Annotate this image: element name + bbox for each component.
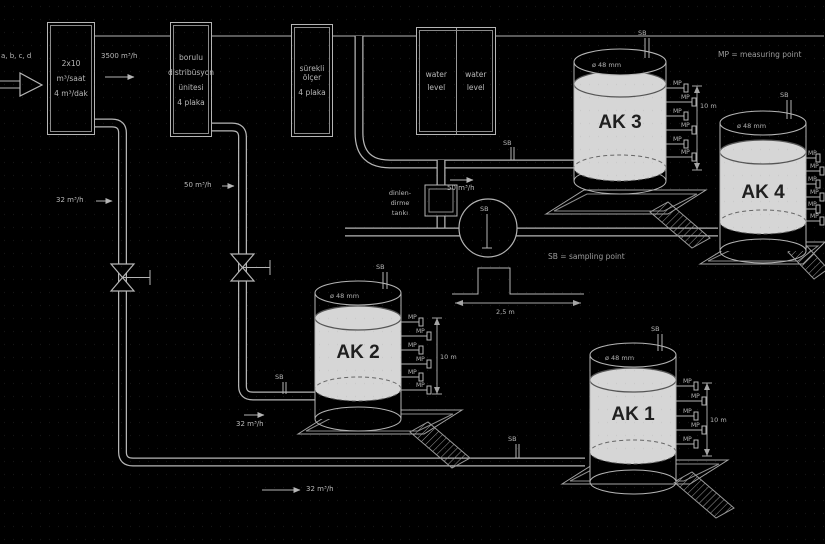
process-box-2: borulu distribüsyon ünitesi 4 plaka bbox=[170, 22, 212, 137]
ak2-sb-label: SB bbox=[376, 263, 385, 271]
svg-text:SB: SB bbox=[275, 373, 284, 381]
valve-mid bbox=[231, 254, 270, 281]
svg-text:MP: MP bbox=[408, 369, 417, 376]
svg-text:MP: MP bbox=[683, 436, 692, 443]
pipe-sample-riser-mid: SB bbox=[503, 139, 514, 160]
settling-feed-flow-label: 50 m³/h bbox=[447, 184, 475, 193]
main-feed-flow-label: 3500 m³/h bbox=[101, 52, 137, 61]
ak1-ramp bbox=[674, 472, 734, 518]
ak3-diameter-label: ø 48 mm bbox=[592, 61, 621, 69]
svg-text:MP: MP bbox=[810, 189, 819, 196]
bottom-line-flow-label: 32 m³/h bbox=[306, 485, 334, 494]
ak1-diameter-label: ø 48 mm bbox=[605, 354, 634, 362]
tank-ak4: SB ø 48 mm AK 4 MP MP MP MP MP MP bbox=[720, 91, 824, 263]
ak1-height-dimension: 10 m bbox=[702, 383, 727, 456]
svg-text:MP: MP bbox=[808, 201, 817, 208]
ak2-feed-flow-label: 32 m³/h bbox=[236, 420, 264, 429]
svg-text:MP: MP bbox=[416, 356, 425, 363]
box3-line2: 4 plaka bbox=[296, 88, 327, 97]
box1-line1: 2x10 bbox=[60, 59, 83, 68]
box4-cell-1: water level bbox=[417, 28, 456, 134]
svg-text:MP: MP bbox=[416, 328, 425, 335]
svg-text:MP: MP bbox=[416, 382, 425, 389]
svg-text:MP: MP bbox=[808, 176, 817, 183]
piping-linework: SB ø 48 mm AK 3 MP MP MP MP MP MP 10 m S… bbox=[0, 0, 825, 544]
svg-text:SB: SB bbox=[508, 435, 517, 443]
svg-text:MP: MP bbox=[683, 408, 692, 415]
ak3-nozzles: MP MP MP MP MP MP bbox=[666, 80, 696, 161]
ak4-sb-label: SB bbox=[780, 91, 789, 99]
ak1-name: AK 1 bbox=[611, 404, 655, 425]
box4-cell1-line1: water bbox=[424, 70, 449, 79]
ak4-name: AK 4 bbox=[741, 182, 785, 203]
inlet-label: a, b, c, d bbox=[1, 52, 31, 61]
box2-line1: borulu bbox=[177, 53, 205, 62]
svg-text:MP: MP bbox=[810, 213, 819, 220]
svg-text:MP: MP bbox=[681, 94, 690, 101]
legend-mp-definition: MP = measuring point bbox=[718, 50, 801, 59]
box4-cell2-line1: water bbox=[463, 70, 488, 79]
ak1-height-label: 10 m bbox=[710, 416, 727, 424]
ak3-name: AK 3 bbox=[598, 112, 641, 133]
settling-name-line3: tankı bbox=[392, 209, 408, 217]
settling-unit-name: dinlen- dirme tankı bbox=[378, 188, 422, 218]
level-gauge-circle: SB bbox=[459, 199, 517, 257]
process-box-1: 2x10 m³/saat 4 m³/dak bbox=[47, 22, 95, 135]
settling-name-line1: dinlen- bbox=[389, 189, 411, 197]
tank-ak2: SB ø 48 mm AK 2 MP MP MP MP MP MP 10 m bbox=[315, 263, 457, 431]
ak1-sb-label: SB bbox=[651, 325, 660, 333]
box2-line2: distribüsyon bbox=[166, 68, 216, 77]
ak4-diameter-label: ø 48 mm bbox=[737, 122, 766, 130]
svg-text:MP: MP bbox=[683, 378, 692, 385]
box2-line4: 4 plaka bbox=[175, 98, 206, 107]
ak3-height-label: 10 m bbox=[700, 102, 717, 110]
box2-line3: ünitesi bbox=[176, 83, 205, 92]
ak3-ramp bbox=[650, 202, 710, 248]
svg-text:MP: MP bbox=[673, 80, 682, 87]
box1-line2: m³/saat bbox=[55, 74, 88, 83]
svg-text:MP: MP bbox=[808, 150, 817, 157]
process-box-4: water level water level bbox=[416, 27, 496, 135]
box4-cell2-line2: level bbox=[465, 83, 487, 92]
legend-sb-definition: SB = sampling point bbox=[548, 252, 625, 261]
svg-text:MP: MP bbox=[691, 422, 700, 429]
svg-text:MP: MP bbox=[408, 342, 417, 349]
ak2-nozzles: MP MP MP MP MP MP bbox=[401, 314, 431, 394]
pipe-sample-riser-bottom: SB bbox=[508, 435, 519, 458]
svg-text:SB: SB bbox=[503, 139, 512, 147]
tank-ak3: SB ø 48 mm AK 3 MP MP MP MP MP MP 10 m bbox=[574, 29, 717, 194]
weir-profile: 2,5 m bbox=[452, 268, 584, 316]
mid-branch-flow-label: 50 m³/h bbox=[184, 181, 212, 190]
ak2-height-dimension: 10 m bbox=[432, 318, 457, 394]
box4-cell1-line2: level bbox=[425, 83, 447, 92]
inlet-arrow-icon bbox=[0, 73, 42, 96]
svg-text:MP: MP bbox=[673, 136, 682, 143]
process-diagram: SB ø 48 mm AK 3 MP MP MP MP MP MP 10 m S… bbox=[0, 0, 825, 544]
ak3-sb-label: SB bbox=[638, 29, 647, 37]
weir-width-label: 2,5 m bbox=[496, 308, 515, 316]
svg-text:MP: MP bbox=[673, 108, 682, 115]
process-box-3: sürekli ölçer 4 plaka bbox=[291, 24, 333, 137]
settling-name-line2: dirme bbox=[391, 199, 410, 207]
ak3-platform bbox=[546, 190, 710, 248]
ak2-diameter-label: ø 48 mm bbox=[330, 292, 359, 300]
box3-line1: sürekli ölçer bbox=[292, 64, 332, 82]
valve-left bbox=[111, 264, 150, 291]
ak1-nozzles: MP MP MP MP MP bbox=[676, 378, 706, 448]
left-branch-flow-label: 32 m³/h bbox=[56, 196, 84, 205]
gauge-sb-label: SB bbox=[480, 205, 489, 213]
svg-text:MP: MP bbox=[810, 163, 819, 170]
ak2-name: AK 2 bbox=[336, 342, 379, 363]
svg-text:MP: MP bbox=[681, 122, 690, 129]
pipe-sample-riser-ak2: SB bbox=[275, 373, 286, 394]
box4-cell-2: water level bbox=[456, 28, 496, 134]
mid-riser-pipe bbox=[212, 127, 322, 396]
ak4-nozzles: MP MP MP MP MP MP bbox=[806, 150, 824, 225]
svg-text:MP: MP bbox=[681, 149, 690, 156]
box1-line3: 4 m³/dak bbox=[52, 89, 90, 98]
svg-text:MP: MP bbox=[408, 314, 417, 321]
ak2-height-label: 10 m bbox=[440, 353, 457, 361]
svg-text:MP: MP bbox=[691, 393, 700, 400]
